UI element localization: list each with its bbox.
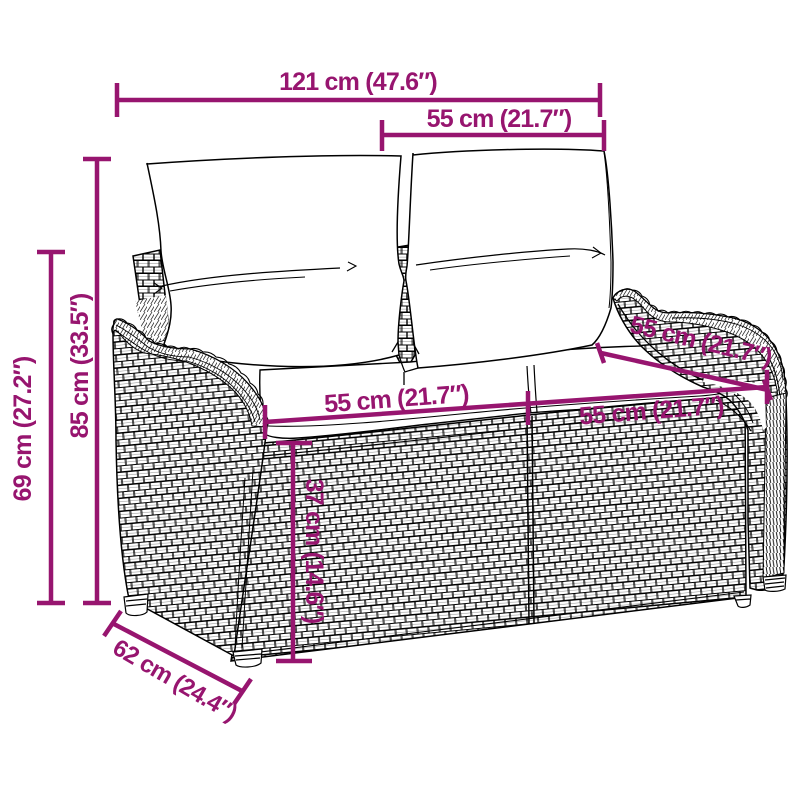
svg-text:69 cm (27.2″): 69 cm (27.2″) xyxy=(9,356,37,501)
svg-text:121 cm (47.6″): 121 cm (47.6″) xyxy=(279,68,437,96)
svg-text:85 cm (33.5″): 85 cm (33.5″) xyxy=(66,293,94,438)
svg-text:55 cm (21.7″): 55 cm (21.7″) xyxy=(427,105,572,133)
svg-text:37 cm (14.6″): 37 cm (14.6″) xyxy=(300,479,328,624)
